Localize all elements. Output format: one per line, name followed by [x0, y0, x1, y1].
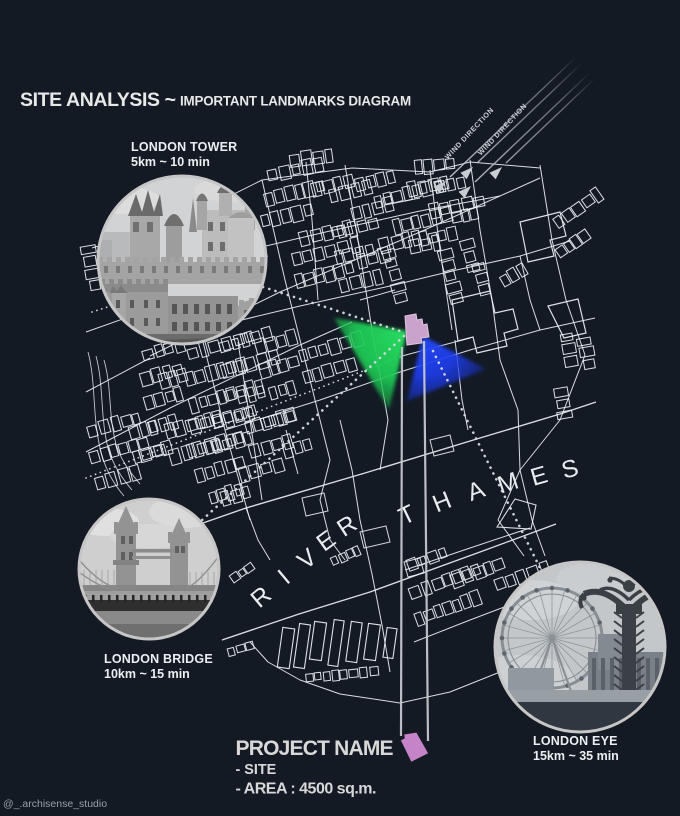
svg-text:LONDON TOWER: LONDON TOWER — [131, 140, 237, 154]
svg-text:- SITE: - SITE — [236, 762, 277, 778]
svg-text:IMPORTANT LANDMARKS DIAGRAM: IMPORTANT LANDMARKS DIAGRAM — [180, 94, 411, 109]
svg-text:- AREA : 4500 sq.m.: - AREA : 4500 sq.m. — [236, 781, 377, 798]
svg-text:LONDON EYE: LONDON EYE — [533, 734, 618, 748]
svg-text:10km ~ 15 min: 10km ~ 15 min — [104, 667, 190, 681]
svg-text:LONDON BRIDGE: LONDON BRIDGE — [104, 652, 213, 666]
svg-text:PROJECT NAME: PROJECT NAME — [236, 737, 394, 760]
svg-text:@_.archisense_studio: @_.archisense_studio — [3, 798, 107, 810]
svg-text:SITE ANALYSIS ~: SITE ANALYSIS ~ — [20, 89, 176, 111]
svg-text:15km ~ 35 min: 15km ~ 35 min — [533, 749, 619, 763]
svg-text:5km ~ 10 min: 5km ~ 10 min — [131, 155, 210, 169]
